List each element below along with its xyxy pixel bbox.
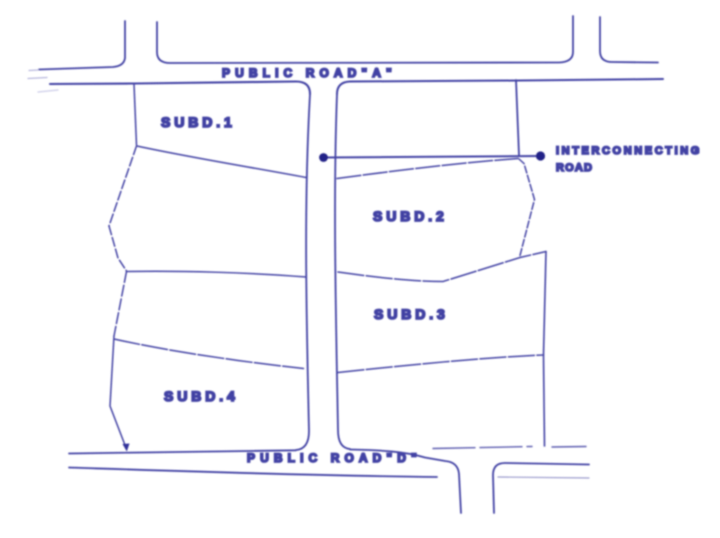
svg-text:ROAD: ROAD	[556, 162, 593, 174]
svg-text:PUBLIC ROAD"D": PUBLIC ROAD"D"	[247, 451, 422, 465]
svg-text:SUBD.3: SUBD.3	[374, 306, 449, 322]
svg-text:SUBD.1: SUBD.1	[161, 114, 236, 130]
svg-text:SUBD.4: SUBD.4	[164, 388, 239, 404]
svg-text:SUBD.2: SUBD.2	[373, 208, 448, 224]
svg-text:PUBLIC ROAD"A": PUBLIC ROAD"A"	[222, 66, 397, 80]
svg-text:INTERCONNECTING: INTERCONNECTING	[556, 145, 702, 157]
